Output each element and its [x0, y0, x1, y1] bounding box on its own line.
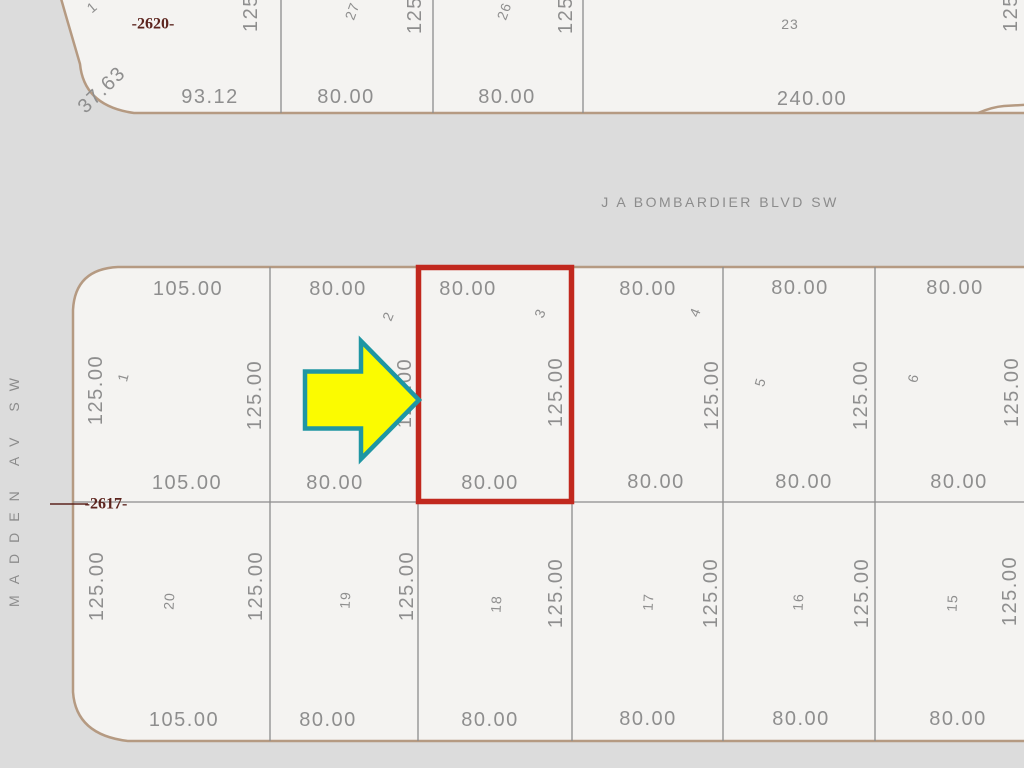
dim-label: 125.00: [700, 558, 722, 628]
dim-label: 125.00: [245, 551, 267, 621]
lot-number: 23: [781, 16, 799, 32]
lot-number: 20: [161, 592, 178, 610]
dim-label: 125.00: [545, 558, 567, 628]
lot-number: 19: [337, 591, 354, 609]
dim-label: 125: [404, 0, 426, 34]
dim-label: 105.00: [152, 472, 222, 494]
dim-label: 80.00: [771, 277, 829, 299]
plat-map-canvas: -2620- 1 37.63 93.12 80.00 80.00 240.00 …: [0, 0, 1024, 768]
dim-label: 80.00: [439, 278, 497, 300]
dim-label: 80.00: [306, 472, 364, 494]
dim-label: 80.00: [929, 708, 987, 730]
dim-label: 125: [1000, 0, 1022, 32]
dim-label: 125.00: [1001, 357, 1023, 427]
dim-label: 125.00: [396, 551, 418, 621]
dim-label: 80.00: [926, 277, 984, 299]
upper-block: -2620- 1 37.63 93.12 80.00 80.00 240.00 …: [58, 0, 1024, 118]
lot-number: 18: [488, 595, 505, 613]
dim-label: 125.00: [850, 360, 872, 430]
dim-label: 80.00: [299, 709, 357, 731]
dim-label: 125: [555, 0, 577, 34]
dim-label: 125.00: [545, 357, 567, 427]
dim-label: 80.00: [317, 86, 375, 108]
dim-label: 125.00: [244, 360, 266, 430]
street-name-vertical: MADDEN AV SW: [6, 367, 22, 607]
dim-label: 125.00: [85, 355, 107, 425]
dim-label: 80.00: [309, 278, 367, 300]
dim-label: 125: [240, 0, 262, 32]
dim-label: 105.00: [153, 278, 223, 300]
dim-label: 80.00: [619, 708, 677, 730]
dim-label: 80.00: [775, 471, 833, 493]
dim-label: 93.12: [181, 86, 239, 108]
dim-label: 80.00: [772, 708, 830, 730]
dim-label: 125.00: [86, 551, 108, 621]
lot-number: 16: [790, 593, 807, 611]
dim-label: 240.00: [777, 88, 847, 110]
street-name-horizontal: J A BOMBARDIER BLVD SW: [601, 194, 839, 210]
dim-label: 125.00: [999, 556, 1021, 626]
dim-label: 105.00: [149, 709, 219, 731]
dim-label: 80.00: [461, 472, 519, 494]
lot-number: 15: [944, 594, 961, 612]
dim-label: 80.00: [930, 471, 988, 493]
dim-label: 125.00: [851, 558, 873, 628]
dim-label: 80.00: [461, 709, 519, 731]
block-number-label: -2620-: [132, 16, 175, 33]
dim-label: 125.00: [701, 360, 723, 430]
dim-label: 80.00: [619, 278, 677, 300]
lot-number: 17: [640, 593, 657, 611]
dim-label: 80.00: [627, 471, 685, 493]
block-number-label: -2617-: [85, 496, 128, 513]
dim-label: 80.00: [478, 86, 536, 108]
